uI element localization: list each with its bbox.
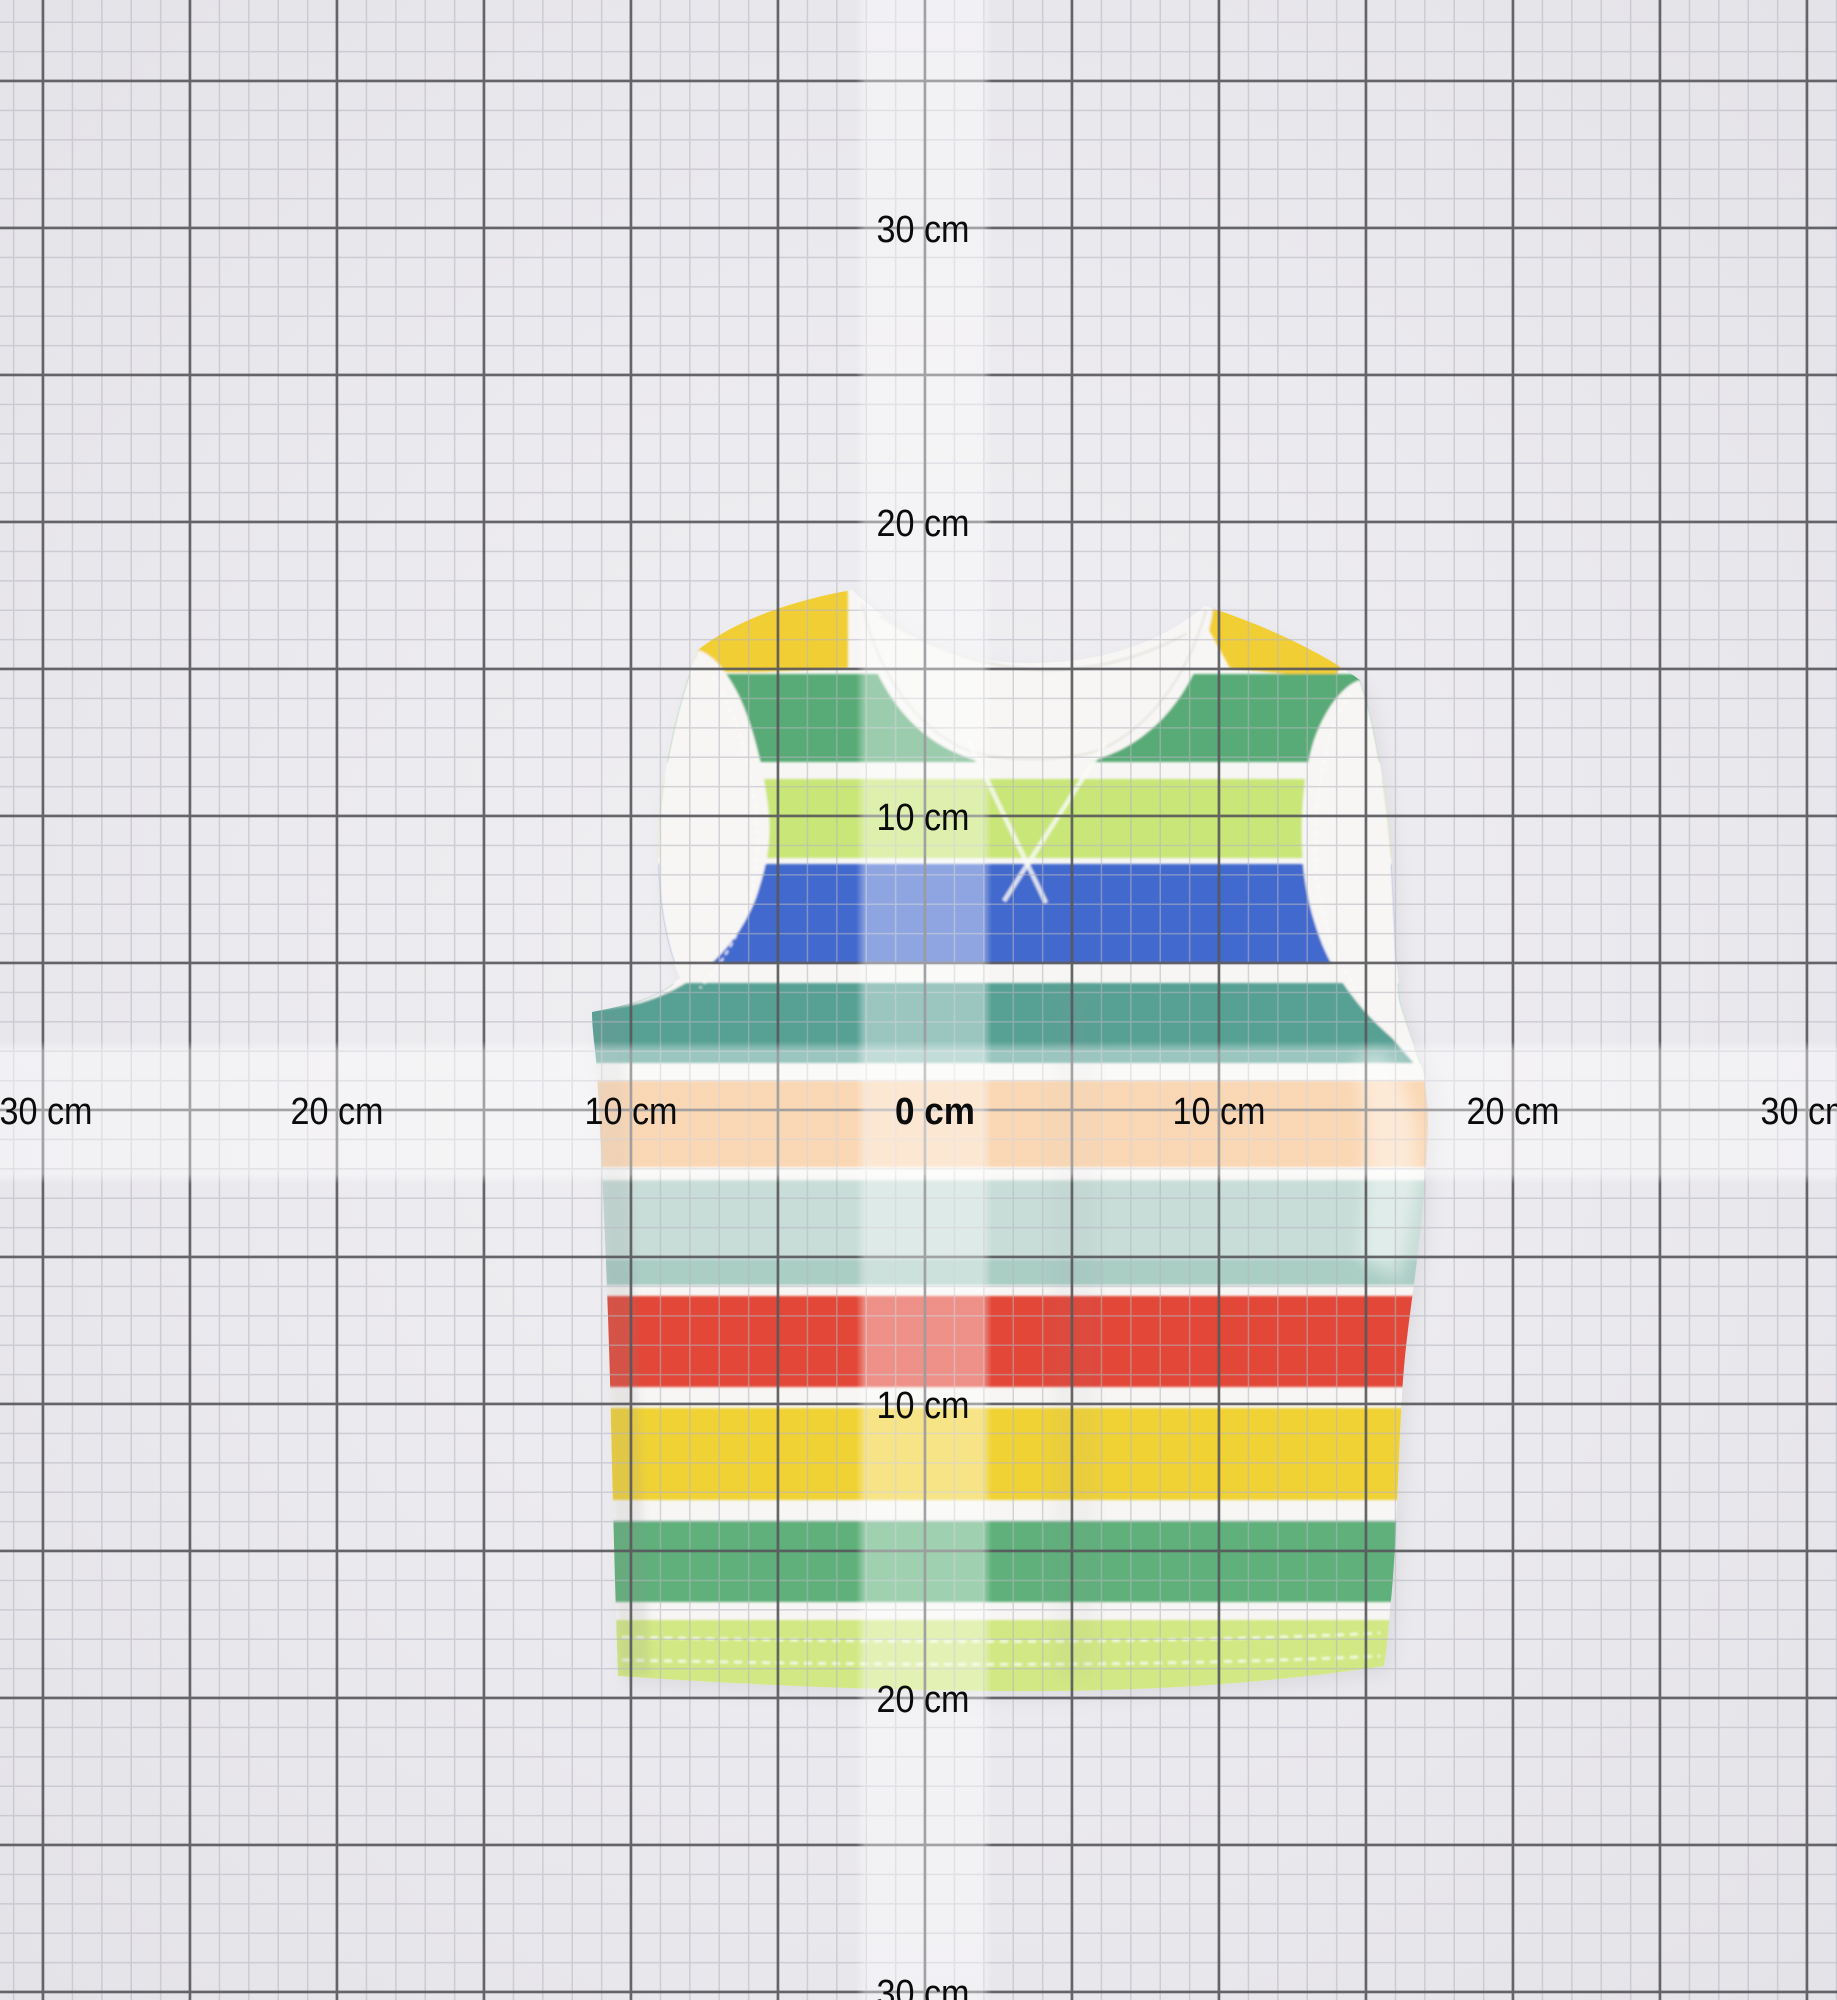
svg-text:20 cm: 20 cm [291, 1091, 384, 1133]
svg-text:30 cm: 30 cm [0, 1091, 93, 1133]
svg-text:20 cm: 20 cm [1467, 1091, 1560, 1133]
svg-text:30 cm: 30 cm [877, 1973, 970, 2000]
svg-text:30 cm: 30 cm [1761, 1091, 1837, 1133]
svg-text:0 cm: 0 cm [895, 1091, 975, 1133]
svg-text:30 cm: 30 cm [877, 209, 970, 251]
svg-text:10 cm: 10 cm [1173, 1091, 1266, 1133]
svg-text:10 cm: 10 cm [877, 1385, 970, 1427]
svg-text:20 cm: 20 cm [877, 1679, 970, 1721]
svg-text:10 cm: 10 cm [585, 1091, 678, 1133]
svg-text:10 cm: 10 cm [877, 797, 970, 839]
svg-text:20 cm: 20 cm [877, 503, 970, 545]
